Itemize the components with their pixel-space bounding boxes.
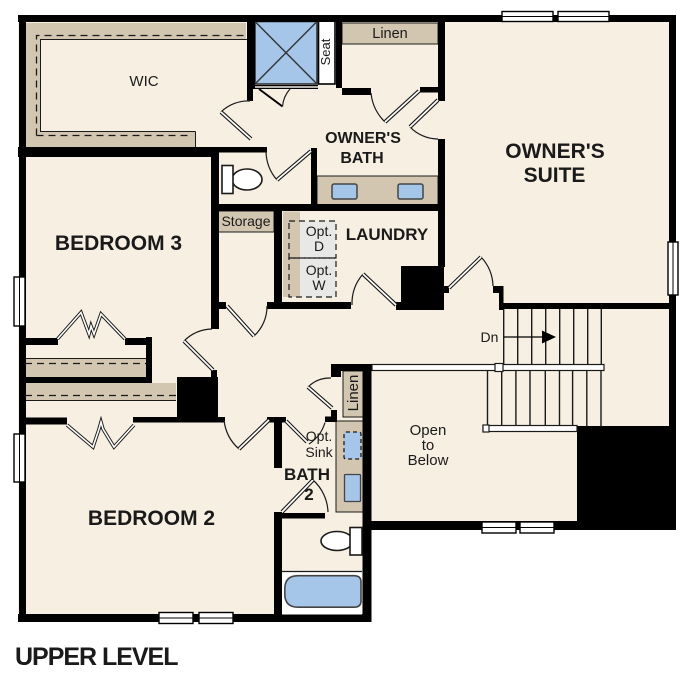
svg-text:Sink: Sink [305, 444, 333, 460]
svg-text:Linen: Linen [345, 375, 362, 412]
svg-text:SUITE: SUITE [524, 164, 586, 187]
svg-text:BEDROOM 2: BEDROOM 2 [88, 507, 215, 530]
svg-text:BATH: BATH [340, 150, 383, 167]
svg-text:Opt.: Opt. [306, 428, 332, 444]
svg-text:WIC: WIC [129, 73, 158, 90]
svg-text:Seat: Seat [318, 38, 333, 65]
svg-text:Storage: Storage [221, 213, 270, 229]
svg-text:2: 2 [304, 485, 313, 504]
svg-text:W: W [312, 277, 326, 293]
svg-text:OWNER'S: OWNER'S [325, 130, 401, 147]
svg-text:BATH: BATH [284, 465, 330, 484]
svg-text:Linen: Linen [372, 26, 407, 42]
svg-text:D: D [314, 238, 324, 254]
svg-text:Opt.: Opt. [306, 223, 332, 239]
svg-text:UPPER LEVEL: UPPER LEVEL [15, 643, 179, 671]
svg-text:Dn: Dn [481, 329, 499, 345]
svg-text:BEDROOM 3: BEDROOM 3 [55, 232, 182, 255]
svg-text:Below: Below [408, 452, 449, 469]
svg-text:LAUNDRY: LAUNDRY [346, 225, 429, 244]
svg-text:OWNER'S: OWNER'S [505, 140, 605, 163]
svg-text:Opt.: Opt. [306, 262, 332, 278]
